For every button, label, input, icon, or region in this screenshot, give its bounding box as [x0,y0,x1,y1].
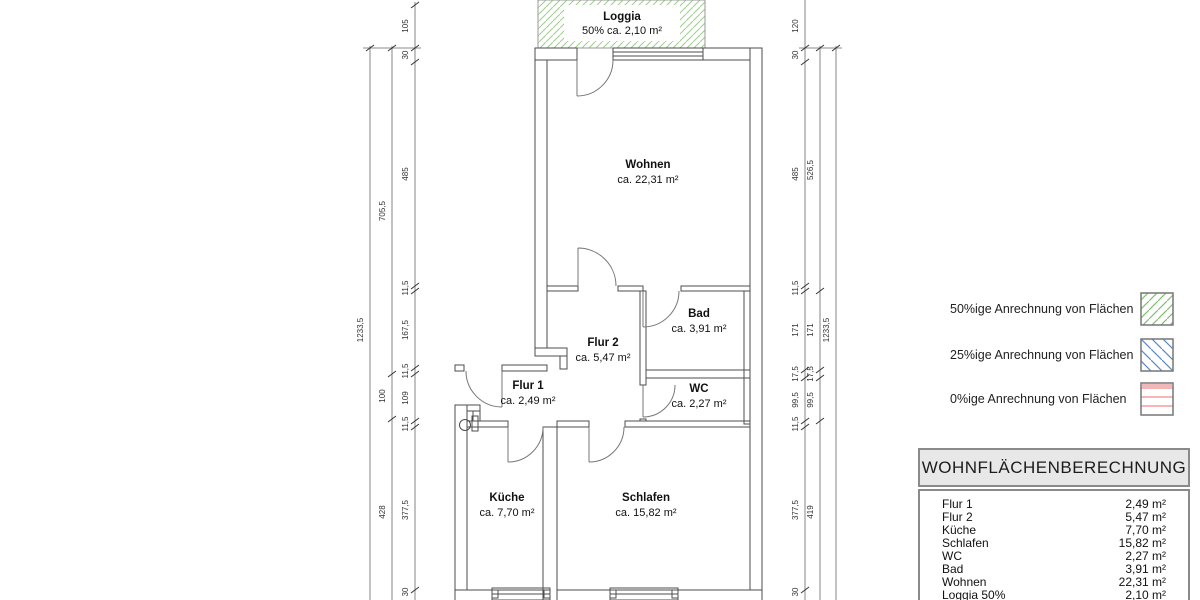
dimension-label: 428 [378,505,387,519]
doors [466,60,679,462]
room-label-kueche: Küche [489,492,524,504]
dimension-label: 1233,5 [356,317,365,342]
area-table-title: WOHNFLÄCHENBERECHNUNG [918,448,1190,487]
door-loggia [577,60,613,96]
dimension-label: 30 [791,587,800,596]
table-row: Flur 2 5,47 m² [942,510,1166,523]
room-area-schlafen: ca. 15,82 m² [615,507,676,519]
door-schlafen [589,427,624,462]
legend-item-25: 25%ige Anrechnung von Flächen [950,337,1174,372]
dimension-label: 105 [401,19,410,33]
door-wc [643,385,675,417]
dimension-label: 120 [791,19,800,33]
table-row-value: 7,70 m² [1125,523,1166,536]
room-label-bad: Bad [688,308,710,320]
table-row: Schlafen 15,82 m² [942,536,1166,549]
loggia-label: Loggia [603,11,641,23]
legend-label-50: 50%ige Anrechnung von Flächen [950,302,1140,316]
shaft [744,291,750,424]
dimension-label: 99,5 [806,392,815,408]
table-row-label: Flur 1 [942,497,973,510]
floor-plan-page: Loggia 50% ca. 2,10 m² [0,0,1200,600]
table-row: Küche 7,70 m² [942,523,1166,536]
room-area-bad: ca. 3,91 m² [671,323,726,335]
room-area-kueche: ca. 7,70 m² [479,507,534,519]
table-row-value: 2,27 m² [1125,549,1166,562]
door-wohnen [578,248,616,286]
table-row: Wohnen 22,31 m² [942,575,1166,588]
door-kueche [508,427,543,462]
legend-label-0: 0%ige Anrechnung von Flächen [950,392,1140,406]
table-row-value: 2,49 m² [1125,497,1166,510]
area-table: WOHNFLÄCHENBERECHNUNG Flur 1 2,49 m² Flu… [918,448,1190,600]
dimension-label: 377,5 [791,499,800,520]
dimension-label: 30 [401,50,410,59]
dimension-label: 167,5 [401,319,410,340]
dimension-label: 11,5 [791,416,800,432]
room-label-flur1: Flur 1 [512,380,544,392]
dimension-chains-left: 1233,5 705,5 100 428 105 30 485 11,5 167… [356,2,421,600]
dimension-label: 485 [401,167,410,181]
green-hatch-swatch-icon [1140,292,1174,326]
loggia-area-label: 50% ca. 2,10 m² [582,25,662,37]
table-row-label: Bad [942,562,963,575]
legend-label-25: 25%ige Anrechnung von Flächen [950,348,1140,362]
table-row-label: Loggia 50% [942,588,1005,600]
dimension-label: 377,5 [401,499,410,520]
dimension-label: 171 [791,323,800,337]
dimension-label: 1233,5 [822,317,831,342]
room-area-flur2: ca. 5,47 m² [575,352,630,364]
room-label-wohnen: Wohnen [625,159,670,171]
dimension-chains-right: 120 30 485 11,5 171 17,5 99,5 11,5 377,5… [791,0,842,600]
table-row-label: Küche [942,523,976,536]
table-row: Bad 3,91 m² [942,562,1166,575]
dimension-label: 419 [806,505,815,519]
area-table-body: Flur 1 2,49 m² Flur 2 5,47 m² Küche 7,70… [918,489,1190,600]
table-row-value: 2,10 m² [1125,588,1166,600]
room-label-wc: WC [689,383,708,395]
dimension-label: 17,5 [806,366,815,382]
dimension-label: 526,5 [806,159,815,180]
dimension-label: 17,5 [791,366,800,382]
dimension-label: 30 [401,587,410,596]
table-row: Loggia 50% 2,10 m² [942,588,1166,600]
loggia-area: Loggia 50% ca. 2,10 m² [538,0,705,48]
table-row-value: 22,31 m² [1119,575,1166,588]
dimension-label: 100 [378,389,387,403]
table-row: WC 2,27 m² [942,549,1166,562]
window-loggia [613,48,703,60]
table-row-value: 15,82 m² [1119,536,1166,549]
room-label-schlafen: Schlafen [622,492,670,504]
dimension-label: 99,5 [791,392,800,408]
table-row-value: 5,47 m² [1125,510,1166,523]
dimension-label: 705,5 [378,200,387,221]
room-area-wc: ca. 2,27 m² [671,398,726,410]
blue-hatch-swatch-icon [1140,338,1174,372]
door-bad [643,291,679,327]
table-row-label: Wohnen [942,575,986,588]
dimension-label: 11,5 [401,363,410,379]
dimension-label: 11,5 [401,280,410,296]
room-label-flur2: Flur 2 [587,337,618,349]
room-labels: Wohnen ca. 22,31 m² Bad ca. 3,91 m² Flur… [479,159,726,519]
dimension-label: 109 [401,391,410,405]
legend-item-50: 50%ige Anrechnung von Flächen [950,291,1174,326]
room-area-wohnen: ca. 22,31 m² [617,174,678,186]
red-hatch-swatch-icon [1140,382,1174,416]
dimension-label: 11,5 [791,280,800,296]
table-row-value: 3,91 m² [1125,562,1166,575]
table-row: Flur 1 2,49 m² [942,497,1166,510]
legend-item-0: 0%ige Anrechnung von Flächen [950,381,1174,416]
dimension-label: 171 [806,323,815,337]
table-row-label: Schlafen [942,536,989,549]
dimension-label: 30 [791,50,800,59]
dimension-label: 11,5 [401,416,410,432]
dimension-label: 485 [791,167,800,181]
door-entrance [466,371,502,407]
table-row-label: WC [942,549,962,562]
room-area-flur1: ca. 2,49 m² [500,395,555,407]
table-row-label: Flur 2 [942,510,973,523]
